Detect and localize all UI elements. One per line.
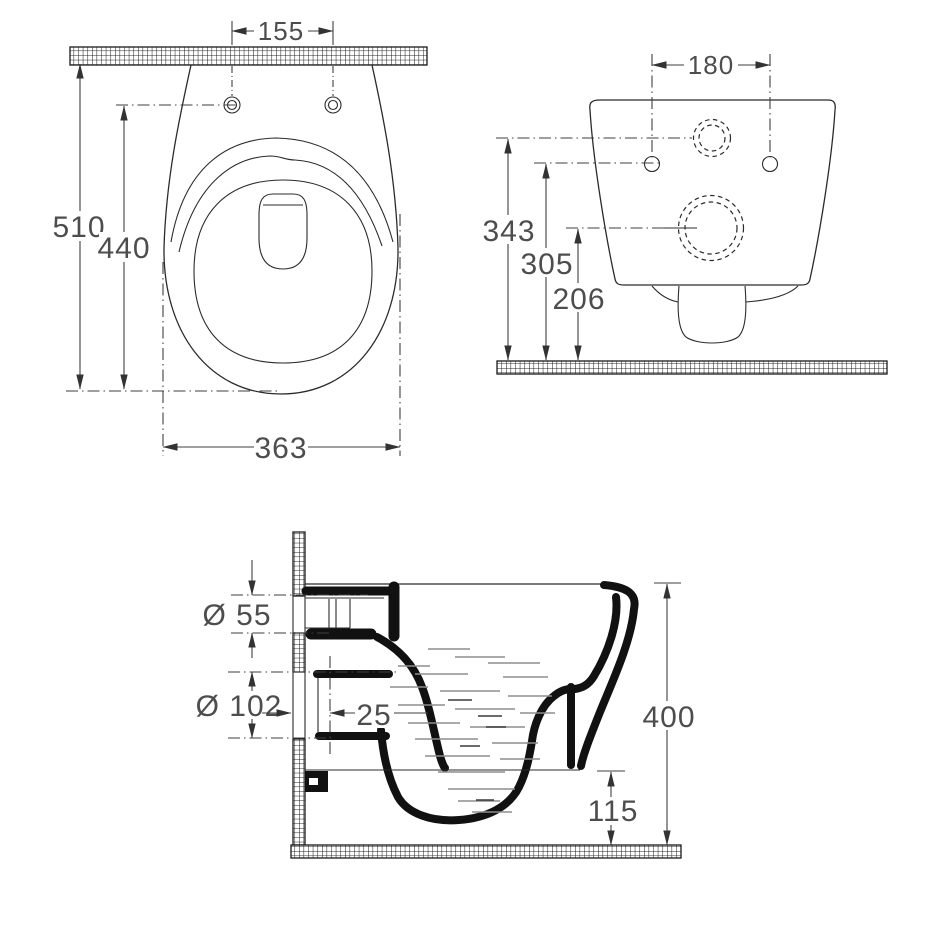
technical-drawing-canvas: 155 510 440 363 (0, 0, 950, 950)
dimension-343: 343 (482, 138, 692, 360)
dimension-305: 305 (520, 163, 660, 360)
outlet-hole-rear (662, 196, 744, 261)
toilet-body-outline-rear (590, 100, 835, 285)
plan-view: 155 510 440 363 (52, 16, 427, 465)
section-view: Ø 55 Ø 102 25 400 115 (196, 532, 696, 858)
fixing-block (305, 771, 328, 792)
dim-400-label: 400 (642, 701, 695, 734)
mounting-hole-right-rear (763, 157, 778, 172)
dim-206-label: 206 (552, 283, 605, 316)
toilet-body-outline-plan (164, 65, 398, 394)
dim-dia102-label: Ø 102 (196, 690, 283, 723)
dimension-dia-55: Ø 55 (202, 560, 368, 658)
wall-hatch-section (293, 532, 305, 845)
wall-hatch-plan (70, 47, 427, 65)
dimension-180: 180 (652, 50, 770, 160)
seat-front-arc (179, 156, 382, 252)
bowl-opening-outline (194, 180, 372, 363)
inlet-pipe-section (305, 598, 384, 628)
dim-343-label: 343 (482, 215, 535, 248)
dim-25-label: 25 (356, 699, 391, 732)
floor-hatch-rear (497, 361, 887, 374)
dim-180-label: 180 (688, 50, 734, 80)
dimension-400: 400 (642, 583, 695, 845)
dim-115-label: 115 (588, 795, 639, 828)
toilet-dimension-drawing: 155 510 440 363 (0, 0, 950, 950)
dim-363-label: 363 (254, 432, 307, 465)
floor-hatch-section (291, 845, 681, 858)
water-level-dashes-dark (448, 700, 506, 800)
dimension-510: 510 (52, 64, 105, 389)
outlet-pipe-rear (652, 286, 798, 343)
water-inlet-hole (694, 120, 731, 157)
dim-dia55-label: Ø 55 (202, 599, 271, 632)
rear-view: 180 343 305 206 (482, 50, 887, 374)
mounting-hole-right-plan (325, 97, 341, 113)
mounting-hole-left-rear (645, 157, 660, 172)
drain-hole (259, 194, 307, 269)
dim-305-label: 305 (520, 248, 573, 281)
dimension-115: 115 (588, 771, 639, 845)
dim-440-label: 440 (97, 232, 150, 265)
dim-155-label: 155 (258, 16, 304, 46)
seat-outer-arc (171, 138, 393, 242)
dimension-440: 440 (97, 105, 240, 389)
dimension-363: 363 (163, 214, 400, 465)
